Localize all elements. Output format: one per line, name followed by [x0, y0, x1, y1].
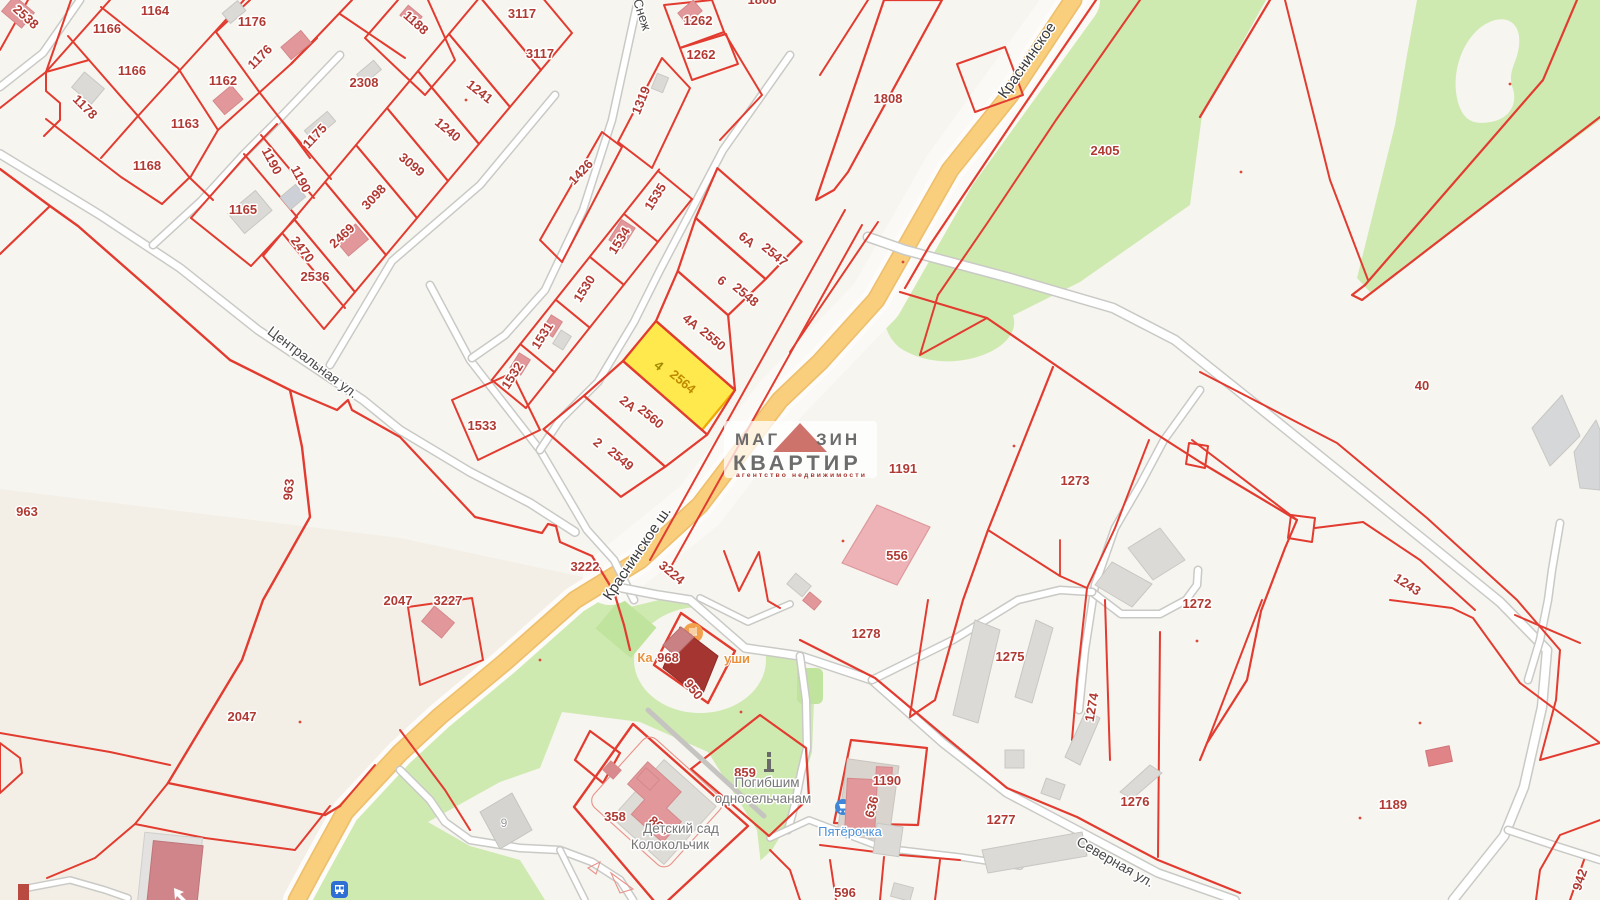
svg-text:1808: 1808 [874, 91, 903, 106]
svg-text:556: 556 [886, 548, 908, 563]
svg-text:2405: 2405 [1091, 143, 1120, 158]
svg-text:3222: 3222 [571, 559, 600, 574]
svg-text:963: 963 [280, 478, 297, 501]
svg-text:1166: 1166 [93, 21, 121, 36]
svg-text:Детский сад: Детский сад [643, 821, 719, 836]
svg-text:1163: 1163 [171, 116, 199, 131]
svg-text:963: 963 [16, 504, 38, 519]
svg-text:Ка: Ка [637, 650, 653, 665]
svg-text:1262: 1262 [687, 47, 716, 62]
svg-text:ЗИН: ЗИН [816, 430, 860, 449]
svg-text:1165: 1165 [229, 202, 257, 217]
svg-text:2536: 2536 [301, 269, 330, 284]
svg-text:Колокольчик: Колокольчик [631, 837, 709, 852]
svg-text:3117: 3117 [526, 46, 554, 61]
svg-text:1272: 1272 [1183, 596, 1212, 611]
svg-text:1533: 1533 [468, 418, 497, 433]
svg-text:1168: 1168 [133, 158, 161, 173]
svg-text:3117: 3117 [508, 6, 536, 21]
svg-text:1176: 1176 [238, 14, 266, 29]
svg-text:1276: 1276 [1121, 794, 1150, 809]
svg-text:1162: 1162 [209, 73, 237, 88]
svg-text:968: 968 [657, 650, 679, 665]
svg-text:2308: 2308 [350, 75, 379, 90]
svg-text:2047: 2047 [228, 709, 257, 724]
svg-text:1278: 1278 [852, 626, 881, 641]
svg-text:1273: 1273 [1061, 473, 1090, 488]
svg-text:1262: 1262 [684, 13, 713, 28]
svg-text:2047: 2047 [384, 593, 413, 608]
svg-text:40: 40 [1415, 378, 1429, 393]
svg-text:уши: уши [724, 651, 750, 666]
svg-text:1277: 1277 [987, 812, 1016, 827]
svg-text:1808: 1808 [748, 0, 777, 7]
svg-text:1275: 1275 [996, 649, 1025, 664]
svg-text:односельчанам: односельчанам [715, 791, 812, 806]
svg-text:358: 358 [604, 809, 626, 824]
svg-text:Пятёрочка: Пятёрочка [818, 824, 882, 839]
svg-text:МАГ: МАГ [735, 430, 780, 449]
svg-text:9: 9 [501, 816, 508, 830]
svg-text:596: 596 [834, 885, 856, 900]
svg-text:1166: 1166 [118, 63, 146, 78]
svg-text:1191: 1191 [889, 461, 917, 476]
svg-text:3227: 3227 [434, 593, 463, 608]
svg-text:1189: 1189 [1379, 797, 1407, 812]
svg-text:Погибшим: Погибшим [734, 775, 799, 790]
svg-text:1190: 1190 [873, 773, 901, 788]
svg-text:1164: 1164 [141, 3, 170, 18]
svg-text:агентство недвижимости: агентство недвижимости [736, 472, 867, 479]
